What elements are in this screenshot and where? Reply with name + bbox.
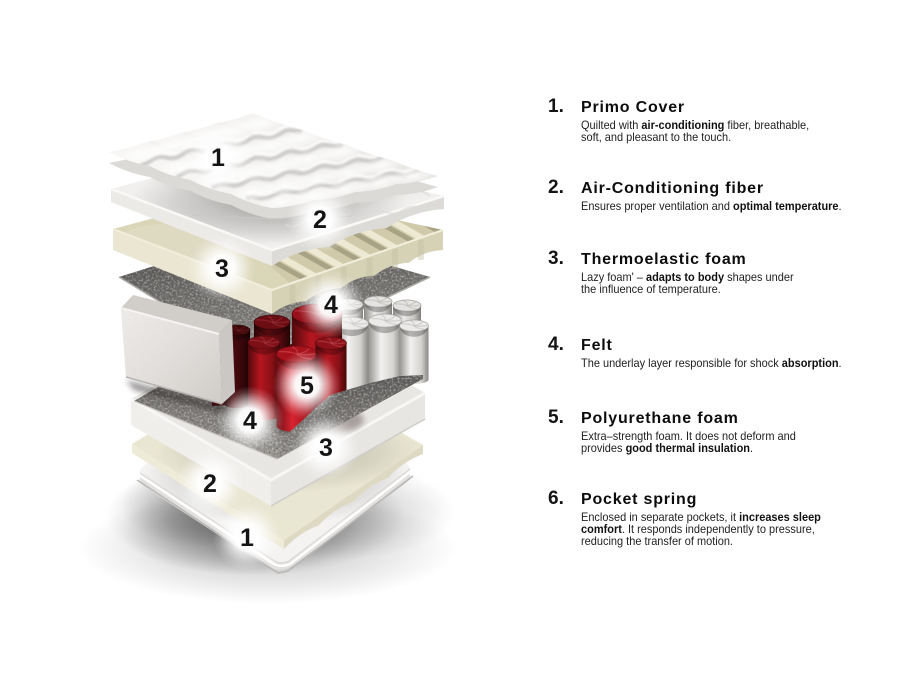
svg-text:5: 5 [300, 372, 314, 400]
svg-text:1: 1 [240, 524, 254, 552]
svg-text:3: 3 [215, 255, 229, 283]
svg-text:2: 2 [313, 206, 327, 234]
svg-text:3: 3 [319, 434, 333, 462]
svg-text:2: 2 [203, 470, 217, 498]
svg-text:1: 1 [211, 144, 225, 172]
svg-text:4: 4 [324, 291, 338, 319]
svg-text:4: 4 [243, 407, 257, 435]
